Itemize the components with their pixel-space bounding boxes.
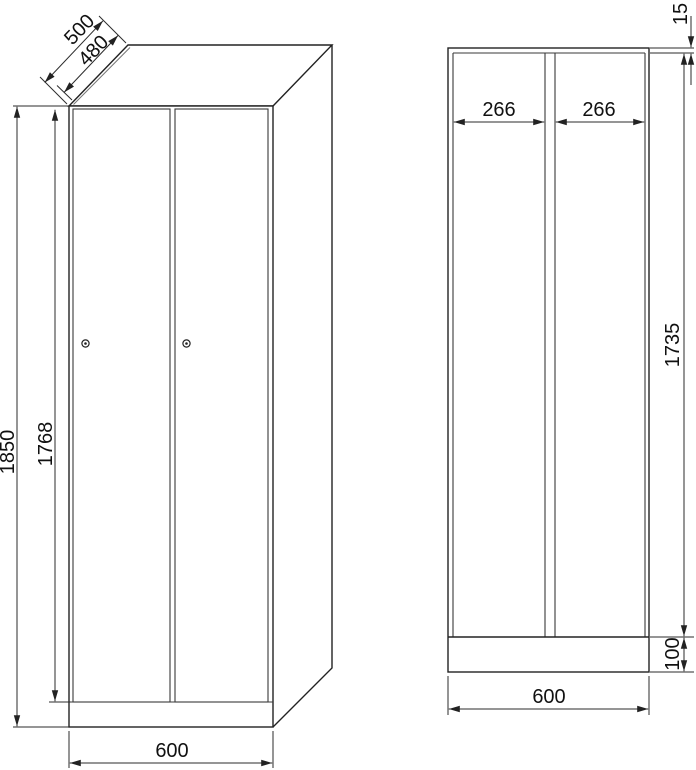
lock-icon-left — [82, 340, 89, 347]
locker-dimension-drawing: 500 480 1850 1768 600 — [0, 0, 696, 770]
cabinet-top-face — [69, 45, 332, 106]
section-view: 15 266 266 1735 100 600 — [448, 3, 694, 715]
dim-door-height: 1768 — [35, 110, 71, 702]
technical-drawing: 500 480 1850 1768 600 — [0, 0, 696, 770]
cabinet-side-face — [273, 45, 332, 727]
dim-plinth-height: 100 — [650, 637, 694, 672]
dim-label-interior-height: 1735 — [662, 323, 684, 368]
dim-height-total: 1850 — [0, 106, 69, 727]
section-outer-body — [448, 48, 649, 672]
dim-label-plinth-height: 100 — [662, 637, 684, 670]
lock-icon-right — [183, 340, 190, 347]
dim-width-front: 600 — [69, 731, 273, 768]
dim-label-width-section: 600 — [532, 686, 565, 708]
extension-line — [40, 77, 67, 104]
dim-width-section: 600 — [448, 676, 649, 715]
dim-label-compartment-right: 266 — [582, 99, 615, 121]
dim-label-door-height: 1768 — [35, 422, 57, 467]
dim-label-top-panel: 15 — [670, 3, 692, 25]
dim-top-panel: 15 — [650, 3, 694, 85]
dim-label-compartment-left: 266 — [482, 99, 515, 121]
dim-interior-height: 1735 — [662, 54, 684, 636]
cabinet-front-face — [69, 106, 273, 727]
dim-label-height-total: 1850 — [0, 430, 19, 475]
dim-label-width-front: 600 — [155, 740, 188, 762]
front-view: 500 480 1850 1768 600 — [0, 10, 332, 768]
extension-line — [57, 86, 72, 101]
